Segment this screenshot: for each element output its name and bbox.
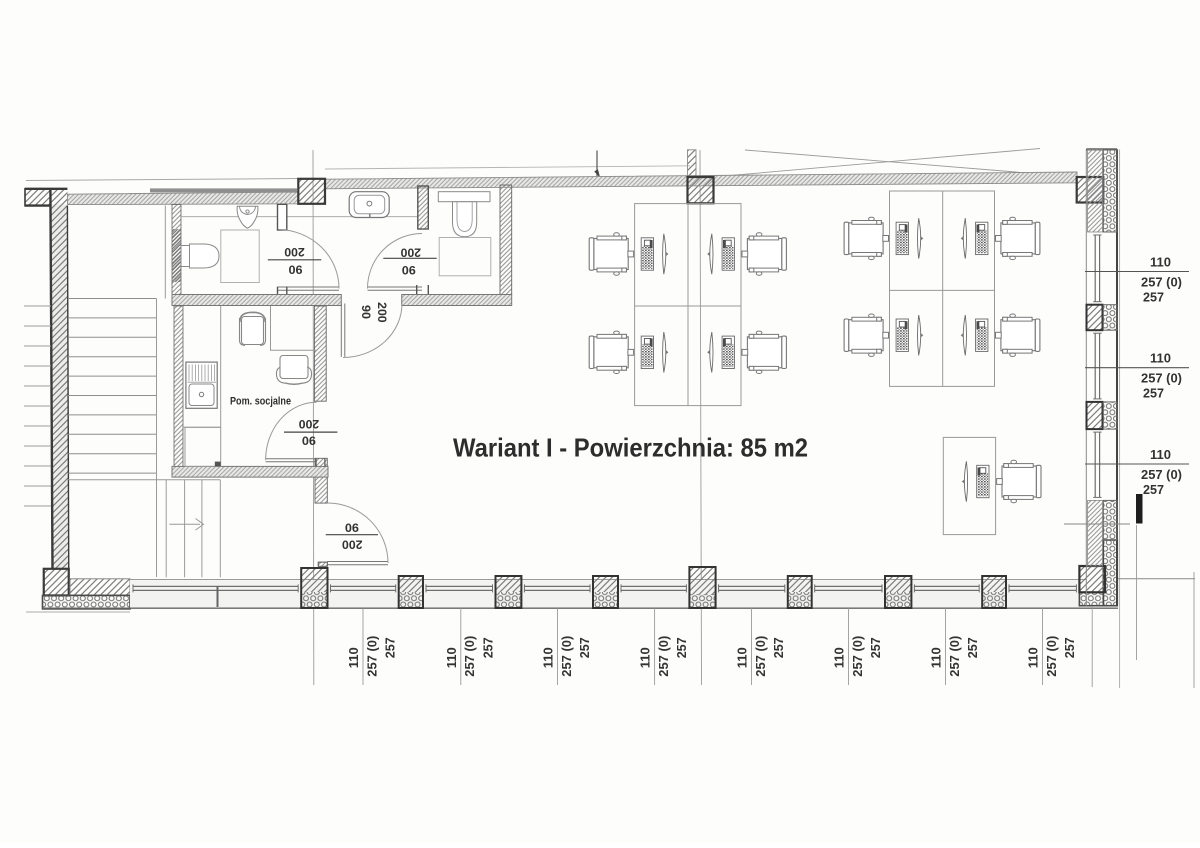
svg-text:257: 257: [674, 637, 689, 658]
svg-text:257 (0): 257 (0): [753, 636, 768, 677]
svg-text:110: 110: [444, 647, 459, 668]
svg-text:110: 110: [346, 647, 361, 668]
svg-text:257 (0): 257 (0): [559, 636, 574, 677]
svg-text:110: 110: [541, 647, 556, 668]
svg-text:257: 257: [480, 637, 495, 658]
svg-text:257: 257: [383, 637, 398, 658]
svg-text:257: 257: [1143, 290, 1164, 305]
svg-text:257 (0): 257 (0): [656, 636, 671, 677]
svg-text:257: 257: [868, 637, 883, 658]
svg-text:200: 200: [298, 417, 319, 431]
svg-text:257: 257: [1062, 637, 1077, 658]
svg-text:200: 200: [375, 302, 389, 323]
svg-text:110: 110: [735, 647, 750, 668]
svg-text:200: 200: [284, 245, 305, 259]
svg-text:90: 90: [288, 263, 302, 277]
svg-text:257 (0): 257 (0): [1141, 467, 1182, 482]
svg-text:257 (0): 257 (0): [364, 636, 379, 677]
svg-text:257: 257: [1143, 482, 1164, 497]
svg-text:200: 200: [342, 537, 363, 551]
svg-text:90: 90: [359, 305, 373, 319]
svg-text:110: 110: [832, 647, 847, 668]
svg-text:257 (0): 257 (0): [462, 636, 477, 677]
svg-text:110: 110: [1150, 351, 1171, 366]
svg-text:200: 200: [400, 246, 421, 260]
svg-text:90: 90: [302, 433, 316, 447]
svg-text:110: 110: [1150, 447, 1171, 462]
svg-text:Pom. socjalne: Pom. socjalne: [230, 396, 291, 408]
svg-text:110: 110: [1150, 255, 1171, 270]
svg-text:90: 90: [401, 263, 415, 277]
svg-text:257: 257: [1143, 386, 1164, 401]
svg-text:257: 257: [771, 637, 786, 658]
svg-text:257 (0): 257 (0): [947, 636, 962, 677]
svg-text:Wariant I - Powierzchnia: 85 m: Wariant I - Powierzchnia: 85 m2: [453, 433, 808, 463]
svg-text:257: 257: [577, 637, 592, 658]
svg-text:110: 110: [1026, 647, 1041, 668]
svg-text:110: 110: [638, 647, 653, 668]
svg-text:257: 257: [965, 637, 980, 658]
svg-text:257 (0): 257 (0): [850, 636, 865, 677]
svg-text:257 (0): 257 (0): [1044, 636, 1059, 677]
svg-text:110: 110: [929, 647, 944, 668]
svg-text:257 (0): 257 (0): [1141, 275, 1182, 290]
svg-text:90: 90: [345, 521, 359, 535]
svg-text:257 (0): 257 (0): [1141, 371, 1182, 386]
